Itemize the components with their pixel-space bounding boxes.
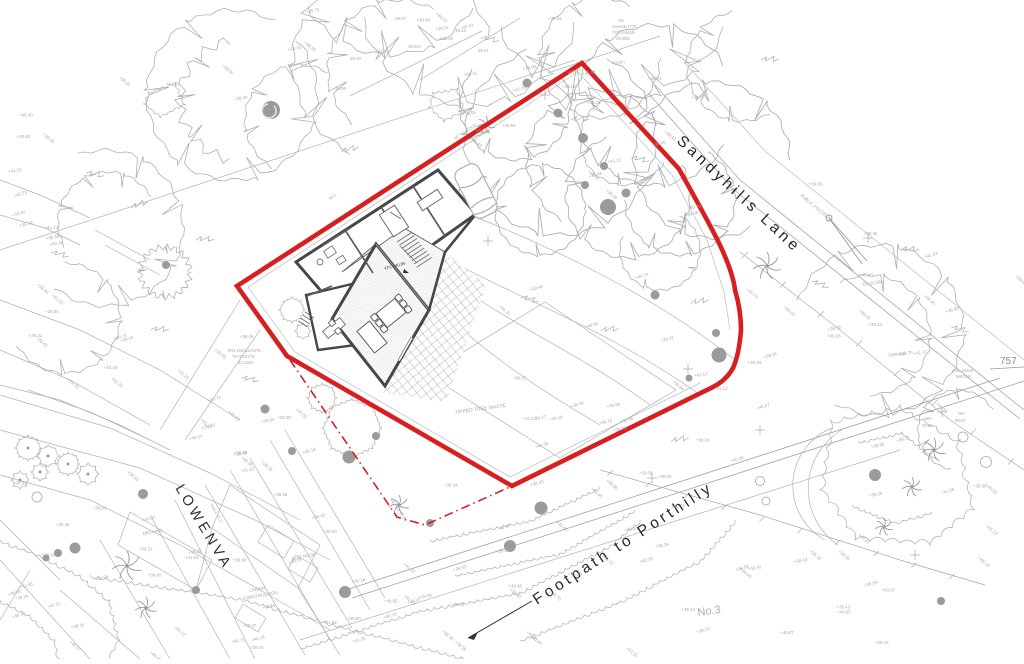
svg-text:MH: MH (925, 416, 932, 421)
svg-text:+39.43: +39.43 (837, 604, 851, 609)
svg-text:+41.23: +41.23 (185, 555, 199, 560)
svg-text:+38.90: +38.90 (13, 481, 27, 486)
svg-text:39.07: 39.07 (955, 418, 966, 423)
svg-text:+39.06: +39.06 (658, 474, 672, 479)
svg-text:58671N: 58671N (956, 374, 971, 379)
svg-text:+40.55: +40.55 (384, 599, 398, 604)
svg-text:+40.18: +40.18 (104, 365, 118, 370)
svg-text:+41.23: +41.23 (522, 416, 536, 421)
svg-text:757: 757 (1000, 356, 1017, 367)
svg-text:+39.74: +39.74 (648, 76, 662, 81)
svg-text:+38.26: +38.26 (587, 100, 601, 105)
svg-text:+40.40: +40.40 (19, 113, 33, 118)
svg-text:MH: MH (958, 411, 965, 416)
svg-text:+38.55: +38.55 (973, 484, 987, 489)
svg-text:+39.45: +39.45 (240, 334, 254, 339)
svg-text:+40.55: +40.55 (502, 123, 516, 128)
svg-text:+41.23: +41.23 (568, 572, 582, 577)
svg-text:39.48: 39.48 (350, 56, 362, 61)
svg-text:909, 19428: 909, 19428 (952, 368, 974, 373)
svg-text:+39.35: +39.35 (639, 471, 653, 476)
svg-text:194245.177E: 194245.177E (612, 24, 637, 29)
svg-text:+38.34: +38.34 (444, 483, 458, 488)
svg-text:+38.43: +38.43 (868, 322, 882, 327)
svg-text:+40.40: +40.40 (417, 17, 431, 22)
svg-text:39.09: 39.09 (922, 423, 933, 428)
svg-text:+38.26: +38.26 (696, 438, 710, 443)
svg-text:+40.07: +40.07 (780, 630, 794, 635)
svg-text:43.27+: 43.27+ (612, 60, 626, 65)
svg-text:+38.90: +38.90 (233, 557, 247, 562)
svg-text:904 194214.937E: 904 194214.937E (228, 348, 261, 353)
svg-text:39.56: 39.56 (335, 86, 347, 91)
svg-text:+39.35: +39.35 (277, 415, 291, 420)
svg-text:+38.43: +38.43 (875, 640, 889, 645)
svg-text:+41.55: +41.55 (323, 620, 337, 625)
svg-text:+38.34: +38.34 (748, 360, 762, 365)
svg-text:+39.31: +39.31 (93, 505, 107, 510)
svg-text:+39.06: +39.06 (323, 529, 337, 534)
svg-text:+39.35: +39.35 (45, 309, 59, 314)
svg-text:+38.90: +38.90 (347, 616, 361, 621)
svg-text:+39.31: +39.31 (139, 547, 153, 552)
svg-text:+39.45: +39.45 (148, 573, 162, 578)
svg-text:+40.40: +40.40 (56, 522, 70, 527)
svg-text:+39.19: +39.19 (562, 84, 576, 89)
svg-text:+39.06: +39.06 (440, 36, 454, 41)
svg-text:39.57: 39.57 (395, 16, 407, 21)
svg-text:+39.35: +39.35 (864, 231, 878, 236)
svg-text:+40.40: +40.40 (859, 273, 873, 278)
svg-text:75774.843N: 75774.843N (612, 30, 635, 35)
svg-text:SH: SH (618, 18, 624, 23)
svg-text:39.43: 39.43 (455, 28, 467, 33)
svg-text:+39.42: +39.42 (548, 16, 562, 21)
svg-text:+41.55: +41.55 (375, 49, 389, 54)
svg-text:+40.07: +40.07 (243, 623, 257, 628)
svg-text:+39.45: +39.45 (234, 450, 248, 455)
svg-text:+40.07: +40.07 (513, 375, 527, 380)
svg-text:+39.43: +39.43 (476, 129, 490, 134)
svg-text:+39.43: +39.43 (42, 553, 56, 558)
svg-text:+39.70: +39.70 (250, 645, 264, 650)
svg-text:+41.55: +41.55 (166, 81, 180, 86)
svg-text:+40.55: +40.55 (451, 602, 465, 607)
svg-text:+41.12: +41.12 (714, 386, 728, 391)
svg-text:+40.07: +40.07 (882, 587, 896, 592)
svg-text:+40.55: +40.55 (837, 610, 851, 615)
svg-text:+40.18: +40.18 (827, 333, 841, 338)
svg-text:+39.06: +39.06 (809, 181, 823, 186)
svg-text:+39.35: +39.35 (274, 492, 288, 497)
svg-text:43.115N: 43.115N (238, 360, 254, 365)
svg-text:+39.45: +39.45 (508, 584, 522, 589)
svg-text:39.41: 39.41 (478, 48, 490, 53)
svg-text:+39.45: +39.45 (16, 134, 30, 139)
svg-text:75743.917N: 75743.917N (232, 354, 255, 359)
svg-text:+41.23: +41.23 (45, 225, 59, 230)
svg-text:39.08N: 39.08N (616, 36, 630, 41)
svg-text:+39.31: +39.31 (29, 333, 43, 338)
svg-text:+39.43: +39.43 (681, 607, 695, 612)
svg-text:35.54+: 35.54+ (408, 44, 422, 49)
